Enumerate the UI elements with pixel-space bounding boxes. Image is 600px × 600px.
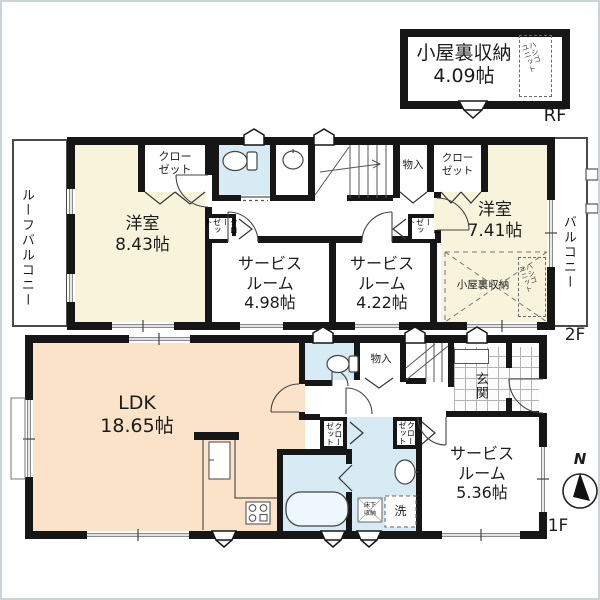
balcony-ticks (586, 169, 598, 213)
washer-label: 洗 (385, 504, 416, 519)
service-room-536-label: サービス ルーム 5.36帖 (430, 444, 534, 503)
bathtub-icon (286, 492, 348, 526)
rf-room-size: 4.09帖 (405, 65, 523, 88)
attic-2f-label: 小屋裏収納 (443, 279, 523, 292)
rf-room-name: 小屋裏収納 (405, 42, 523, 65)
rf-room-label: 小屋裏収納 4.09帖 (405, 42, 523, 88)
f1-floor-label: 1F (543, 516, 573, 537)
balcony-label: バルコニー (560, 197, 576, 307)
storage-1f-label: 物入 (364, 353, 398, 366)
f2-floor-label: 2F (558, 325, 592, 346)
rf-floor-label: RF (538, 105, 572, 127)
service-room-422-label: サービス ルーム 4.22帖 (337, 254, 427, 313)
entrance-label: 玄関 (472, 364, 488, 408)
attic-ladder-label: ハシゴユニット (517, 262, 540, 293)
western-room-843-label: 洋室 8.43帖 (90, 214, 195, 255)
toilet-2f-icon (223, 152, 257, 171)
service-room-498-label: サービス ルーム 4.98帖 (215, 254, 325, 313)
sink-1f-icon (395, 460, 419, 484)
compass-icon (563, 473, 597, 508)
closet-2f-top-left-label: クロー ゼット (145, 150, 205, 177)
rf-ladder-label: ハシゴユニット (520, 40, 544, 73)
sliding-door (241, 197, 270, 201)
ldk-label: LDK 18.65帖 (75, 392, 199, 438)
stairs-2f (315, 145, 386, 198)
toilet-1f-icon (327, 356, 358, 373)
refrigerator-icon (209, 442, 230, 479)
rf-ladder-unit: ハシゴユニット (519, 35, 552, 97)
floor-plan: クローゼット クローゼット クローゼット クローゼット (0, 0, 600, 600)
stove-icon (246, 502, 270, 524)
stairs-1f (406, 343, 448, 382)
compass-north-label: N (566, 450, 594, 468)
roof-balcony-label: ルーフバルコニー (18, 165, 34, 330)
wash-basin-2f-icon (283, 149, 303, 169)
closet-2f-top-right-label: クロー ゼット (434, 152, 481, 178)
western-room-741-label: 洋室 7.41帖 (445, 200, 545, 241)
storage-2f-label: 物入 (398, 159, 428, 172)
attic-ladder-unit: ハシゴユニット (518, 257, 546, 317)
underfloor-storage-label: 床下 収納 (358, 502, 382, 518)
